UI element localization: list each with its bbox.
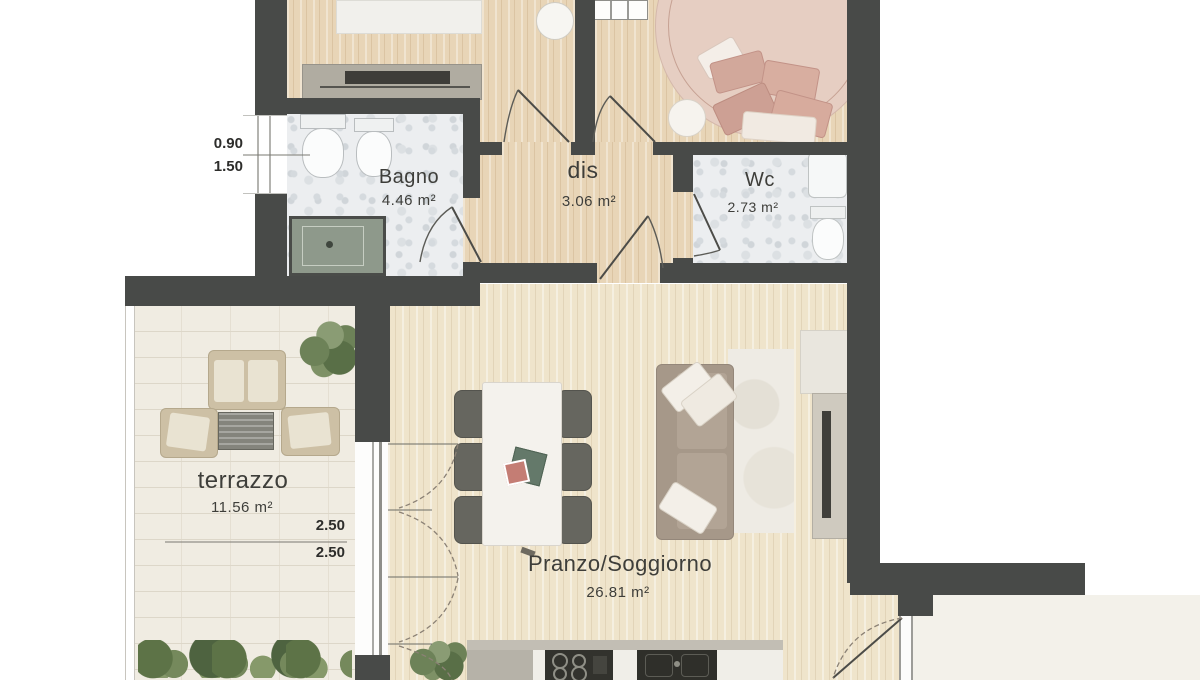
room-label-wc: Wc bbox=[710, 169, 810, 191]
dimension-value: 0.90 bbox=[196, 135, 243, 153]
door-swing-arc bbox=[593, 96, 610, 142]
door-swing-arc bbox=[694, 250, 720, 256]
folding-door-arc bbox=[399, 646, 452, 680]
door-swing-arc bbox=[420, 207, 452, 262]
room-area-dis: 3.06 m² bbox=[529, 194, 649, 211]
door-leaf bbox=[452, 207, 481, 262]
dimension-value: 1.50 bbox=[196, 158, 243, 176]
room-label-bagno: Bagno bbox=[339, 166, 479, 188]
annotation-overlay bbox=[0, 0, 1200, 680]
room-area-wc: 2.73 m² bbox=[693, 200, 813, 215]
room-label-dis: dis bbox=[533, 158, 633, 183]
door-swing-arc bbox=[504, 90, 518, 142]
door-swing-arc bbox=[648, 216, 663, 268]
room-area-bagno: 4.46 m² bbox=[339, 193, 479, 210]
folding-door-arc bbox=[399, 512, 458, 576]
floor-plan: Bagno 4.46 m² dis 3.06 m² Wc 2.73 m² ter… bbox=[0, 0, 1200, 680]
door-leaf bbox=[610, 96, 655, 142]
folding-door-arc bbox=[399, 578, 458, 642]
door-leaf bbox=[518, 90, 569, 142]
dimension-value: 2.50 bbox=[298, 544, 345, 562]
room-label-terrazzo: terrazzo bbox=[173, 468, 313, 494]
room-label-pranzo: Pranzo/Soggiorno bbox=[510, 552, 730, 576]
door-leaf bbox=[600, 216, 648, 279]
folding-door-arc bbox=[399, 444, 458, 508]
room-area-terrazzo: 11.56 m² bbox=[172, 500, 312, 517]
dimension-value: 2.50 bbox=[298, 517, 345, 535]
door-leaf bbox=[833, 618, 902, 678]
room-area-pranzo: 26.81 m² bbox=[508, 585, 728, 602]
